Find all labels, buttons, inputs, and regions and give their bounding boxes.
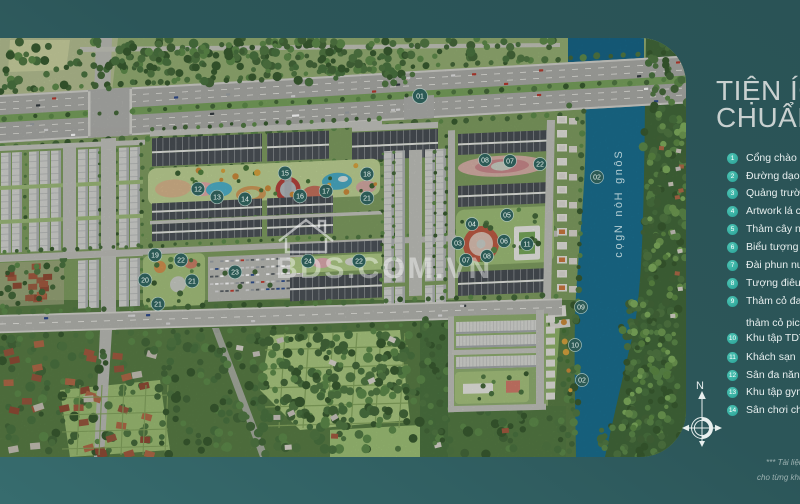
- svg-text:c: c: [613, 252, 625, 258]
- svg-text:g: g: [613, 235, 625, 241]
- svg-text:S: S: [613, 151, 625, 158]
- svg-text:g: g: [613, 178, 625, 184]
- svg-text:08: 08: [483, 253, 491, 260]
- svg-text:04: 04: [468, 221, 476, 228]
- svg-text:13: 13: [213, 194, 221, 201]
- svg-text:17: 17: [322, 188, 330, 195]
- svg-text:H: H: [613, 192, 625, 200]
- svg-text:20: 20: [141, 277, 149, 284]
- svg-text:21: 21: [363, 195, 371, 202]
- svg-text:21: 21: [188, 278, 196, 285]
- svg-text:16: 16: [296, 193, 304, 200]
- svg-text:15: 15: [281, 170, 289, 177]
- svg-text:02: 02: [578, 377, 586, 384]
- svg-text:23: 23: [231, 269, 239, 276]
- svg-text:18: 18: [363, 171, 371, 178]
- svg-text:05: 05: [503, 212, 511, 219]
- svg-text:22: 22: [536, 161, 544, 168]
- svg-text:06: 06: [500, 238, 508, 245]
- svg-text:07: 07: [506, 158, 514, 165]
- svg-text:07: 07: [462, 257, 470, 264]
- svg-text:n: n: [613, 169, 625, 175]
- svg-text:03: 03: [454, 240, 462, 247]
- svg-text:22: 22: [177, 257, 185, 264]
- svg-text:01: 01: [416, 93, 424, 100]
- svg-text:21: 21: [154, 301, 162, 308]
- svg-text:22: 22: [355, 258, 363, 265]
- svg-text:ọ: ọ: [613, 243, 625, 249]
- svg-text:24: 24: [304, 258, 312, 265]
- svg-text:12: 12: [194, 186, 202, 193]
- svg-text:N: N: [613, 225, 625, 233]
- svg-text:n: n: [613, 211, 625, 217]
- svg-text:02: 02: [593, 174, 601, 181]
- svg-text:10: 10: [571, 342, 579, 349]
- svg-text:ò: ò: [613, 202, 625, 208]
- svg-text:08: 08: [481, 157, 489, 164]
- svg-text:14: 14: [241, 196, 249, 203]
- svg-text:19: 19: [151, 252, 159, 259]
- svg-text:09: 09: [577, 304, 585, 311]
- svg-text:ô: ô: [613, 161, 625, 167]
- svg-text:11: 11: [523, 241, 530, 248]
